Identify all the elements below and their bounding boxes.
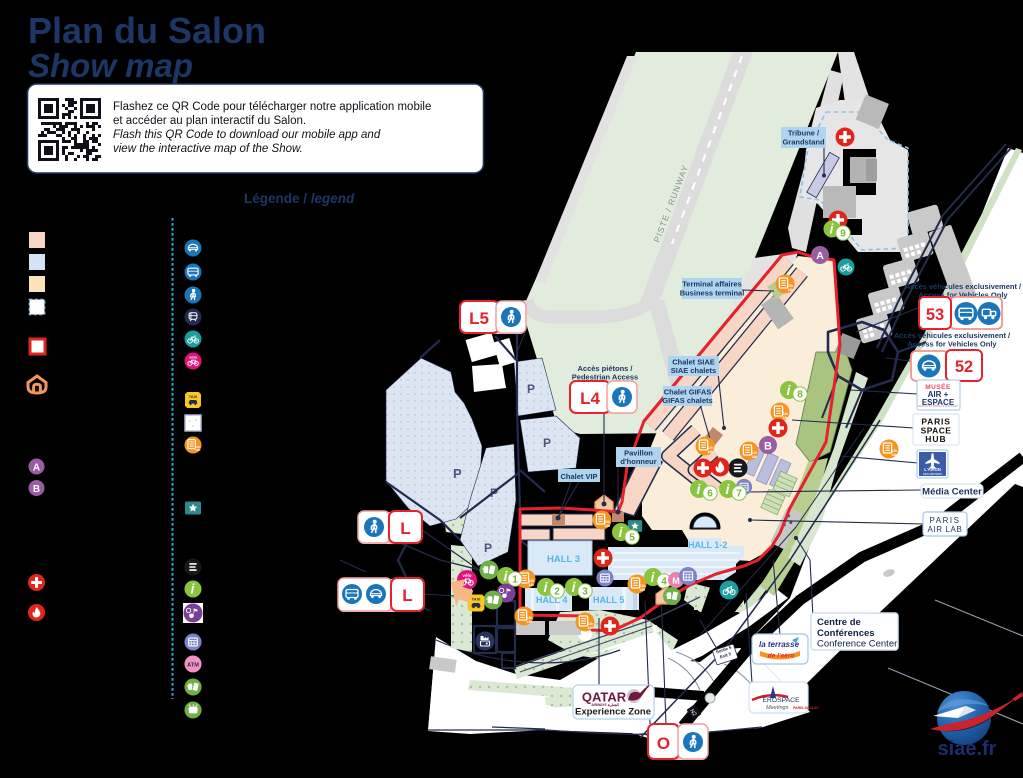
svg-text:53: 53 bbox=[926, 306, 944, 324]
svg-text:3: 3 bbox=[582, 587, 588, 598]
svg-text:HALL 3: HALL 3 bbox=[547, 554, 580, 565]
svg-text:Centre de: Centre de bbox=[817, 617, 861, 628]
svg-text:Chalet VIP: Chalet VIP bbox=[560, 472, 597, 481]
svg-text:B: B bbox=[33, 484, 40, 495]
svg-text:et accéder au plan interactif: et accéder au plan interactif du Salon. bbox=[113, 115, 306, 127]
svg-text:L4: L4 bbox=[580, 389, 600, 408]
svg-text:P: P bbox=[543, 436, 551, 450]
svg-text:B: B bbox=[764, 441, 772, 453]
svg-text:L5: L5 bbox=[469, 309, 489, 328]
svg-text:SIAE chalets: SIAE chalets bbox=[671, 366, 716, 375]
svg-text:4: 4 bbox=[661, 577, 667, 588]
svg-text:Média Center: Média Center bbox=[922, 487, 982, 498]
svg-text:P: P bbox=[527, 382, 535, 396]
svg-text:d'honneur: d'honneur bbox=[620, 457, 656, 466]
svg-text:AIR LAB: AIR LAB bbox=[928, 525, 963, 534]
svg-text:Flash this QR Code to download: Flash this QR Code to download our mobil… bbox=[113, 129, 381, 141]
svg-text:O: O bbox=[657, 734, 670, 753]
svg-text:P: P bbox=[453, 466, 462, 481]
svg-text:Terminal affaires: Terminal affaires bbox=[682, 280, 741, 289]
svg-text:9: 9 bbox=[840, 229, 846, 240]
svg-text:Conference Center: Conference Center bbox=[817, 639, 897, 650]
svg-text:Access for Vehicles Only: Access for Vehicles Only bbox=[907, 340, 997, 349]
svg-text:GIFAS chalets: GIFAS chalets bbox=[662, 396, 712, 405]
svg-text:8: 8 bbox=[797, 390, 803, 401]
svg-text:7: 7 bbox=[736, 489, 742, 500]
svg-text:Experience Zone: Experience Zone bbox=[575, 707, 651, 718]
svg-text:Conférences: Conférences bbox=[817, 628, 875, 639]
svg-text:M: M bbox=[672, 576, 680, 586]
svg-text:Business terminal: Business terminal bbox=[680, 289, 745, 298]
svg-text:Tribune /: Tribune / bbox=[788, 129, 820, 138]
svg-text:siae.fr: siae.fr bbox=[938, 738, 997, 760]
svg-text:2: 2 bbox=[554, 587, 560, 598]
svg-text:de l'aéro: de l'aéro bbox=[768, 653, 795, 660]
svg-text:A: A bbox=[33, 463, 40, 474]
svg-text:A: A bbox=[816, 250, 824, 262]
svg-text:1: 1 bbox=[512, 575, 518, 586]
svg-text:Plan du Salon: Plan du Salon bbox=[28, 10, 266, 51]
svg-text:Grandstand: Grandstand bbox=[782, 138, 825, 147]
svg-text:Flashez ce QR Code pour téléch: Flashez ce QR Code pour télécharger notr… bbox=[113, 101, 431, 113]
svg-text:5: 5 bbox=[629, 533, 635, 544]
svg-text:Meetings: Meetings bbox=[766, 705, 789, 711]
svg-text:L: L bbox=[402, 586, 412, 605]
svg-text:PARIS: PARIS bbox=[930, 516, 961, 525]
svg-text:view the interactive map of th: view the interactive map of the Show. bbox=[113, 143, 303, 155]
svg-text:la terrasse: la terrasse bbox=[759, 640, 800, 649]
svg-text:6: 6 bbox=[707, 489, 713, 500]
svg-text:Légende / legend: Légende / legend bbox=[244, 191, 355, 206]
svg-text:EROSPACE: EROSPACE bbox=[762, 697, 800, 704]
svg-text:Show map: Show map bbox=[28, 47, 193, 84]
svg-text:HALL 5: HALL 5 bbox=[593, 595, 624, 605]
svg-text:DES MÉTIERS: DES MÉTIERS bbox=[923, 471, 942, 476]
svg-text:PARIS-SACLAY: PARIS-SACLAY bbox=[793, 706, 819, 710]
svg-text:HALL 1-2: HALL 1-2 bbox=[688, 540, 727, 550]
svg-text:L: L bbox=[400, 519, 410, 538]
svg-text:52: 52 bbox=[955, 358, 973, 376]
svg-text:HUB: HUB bbox=[925, 434, 946, 444]
svg-text:P: P bbox=[484, 541, 492, 555]
